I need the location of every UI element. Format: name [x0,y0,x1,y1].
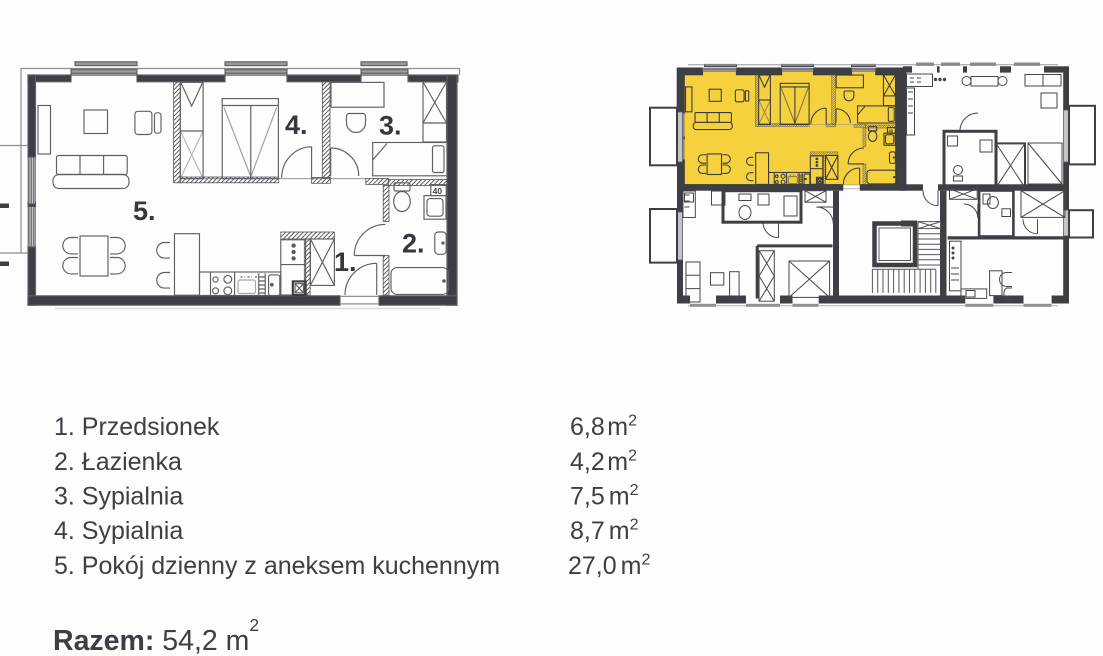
svg-text:27,0m2: 27,0m2 [568,552,651,581]
svg-text:3. Sypialnia: 3. Sypialnia [54,483,183,511]
svg-text:2. Łazienka: 2. Łazienka [54,448,182,476]
svg-text:4,2m2: 4,2m2 [570,448,637,477]
svg-text:3.: 3. [379,111,402,141]
svg-text:4. Sypialnia: 4. Sypialnia [54,517,183,545]
svg-text:1. Przedsionek: 1. Przedsionek [54,413,220,441]
svg-text:6,8m2: 6,8m2 [570,413,637,442]
svg-text:1.: 1. [334,247,357,277]
svg-text:2.: 2. [402,229,425,259]
svg-text:8,7m2: 8,7m2 [570,517,639,546]
svg-text:5.: 5. [133,196,156,226]
svg-text:7,5m2: 7,5m2 [570,482,639,511]
svg-text:5. Pokój dzienny z aneksem kuc: 5. Pokój dzienny z aneksem kuchennym [54,552,500,580]
svg-text:4.: 4. [285,110,308,140]
svg-text:Razem: 54,2 m2: Razem: 54,2 m2 [53,615,259,656]
